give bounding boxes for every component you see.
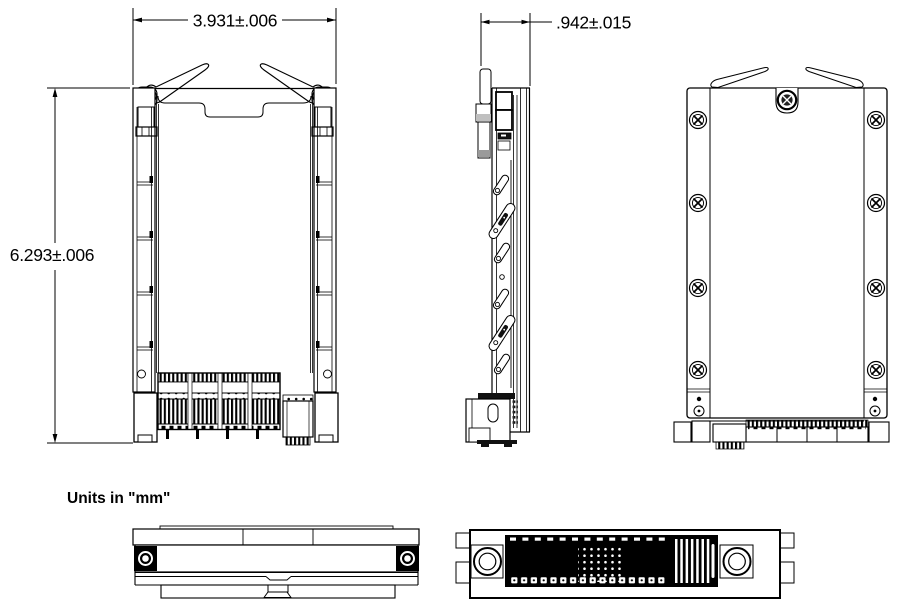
retention-screw-icon [724, 548, 751, 575]
arrowhead-icon [481, 20, 490, 25]
rear-connectors [674, 420, 889, 449]
card-rail-right [312, 88, 336, 392]
height-dimension-label: 6.293±.006 [10, 245, 94, 265]
top-cover [155, 89, 314, 118]
arrowhead-icon [53, 88, 58, 97]
depth-dimension-label: .942±.015 [556, 13, 631, 33]
lever-profile [476, 69, 491, 158]
side-tab [780, 533, 794, 548]
top-view [133, 526, 419, 598]
side-bottom-connector [466, 393, 518, 447]
fastener-ring-icon [400, 551, 416, 567]
striped-connector [672, 535, 718, 587]
backplane-connector-bank [158, 373, 313, 445]
guide-blocks [496, 92, 512, 150]
module-body [135, 545, 418, 572]
rear-view [674, 68, 889, 449]
top-center-screw [776, 88, 798, 113]
width-dimension-label: 3.931±.006 [193, 11, 277, 31]
rear-panel [687, 88, 887, 418]
side-tab [456, 533, 470, 548]
arrowhead-icon [327, 18, 336, 23]
side-tab [456, 562, 470, 583]
connector-tails [166, 429, 259, 439]
dimension-height [47, 88, 133, 443]
front-view [133, 64, 338, 445]
side-tab [780, 562, 794, 583]
contact-row [508, 576, 666, 586]
drawing-canvas: 3.931±.006 6.293±.006 .942±.015 [0, 0, 912, 616]
arrowhead-icon [522, 20, 531, 25]
units-note: Units in "mm" [67, 490, 170, 507]
top-bar [133, 529, 419, 545]
card-rail-left [133, 88, 157, 392]
fastener-ring-icon [138, 551, 154, 567]
side-view [466, 69, 530, 447]
main-connector [505, 535, 672, 587]
bottom-view [456, 530, 794, 598]
io-connector [283, 395, 313, 445]
dimension-depth [481, 13, 552, 86]
lever-tip-right [806, 68, 863, 88]
retention-screw-icon [474, 548, 501, 575]
lever-tip-left [711, 68, 768, 88]
arrowhead-icon [133, 18, 142, 23]
keying-tab [264, 585, 291, 598]
technical-drawing-sheet: 3.931±.006 6.293±.006 .942±.015 [0, 0, 912, 616]
arrowhead-icon [53, 434, 58, 443]
card-edges [157, 97, 313, 373]
